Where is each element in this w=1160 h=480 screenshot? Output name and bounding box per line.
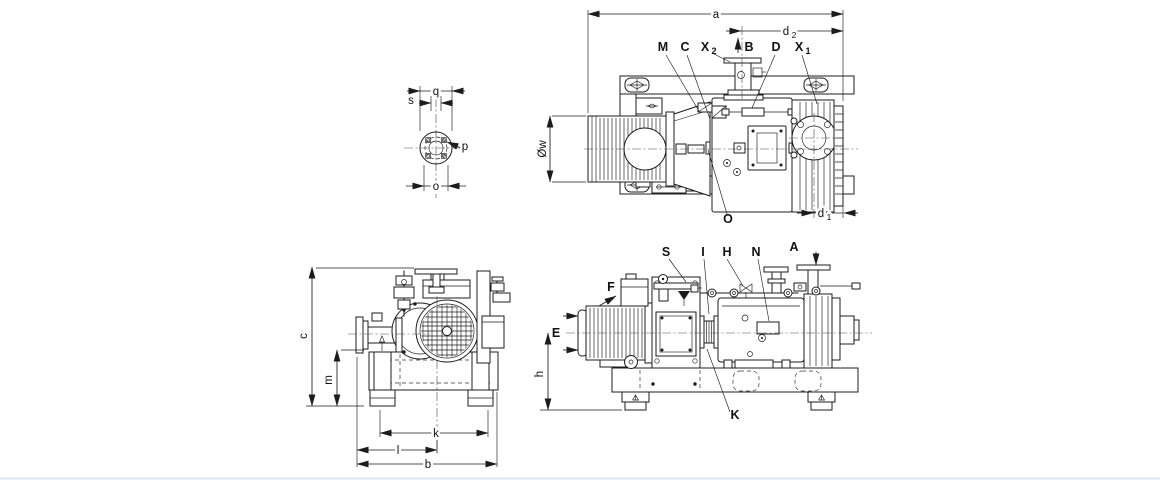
- cooling-ribs-side-view: [804, 287, 832, 368]
- dim-h: h: [534, 333, 548, 410]
- dim-label-o: o: [433, 181, 439, 193]
- front-view: c m k l b: [298, 267, 510, 471]
- label-K: K: [730, 408, 739, 422]
- base-block-side-view: [612, 368, 858, 392]
- label-O: O: [723, 212, 733, 226]
- dim-label-d1-sub: 1: [827, 212, 832, 222]
- label-C: C: [680, 40, 689, 54]
- frame-plate-front: [477, 271, 510, 363]
- dim-label-w: Øw: [537, 140, 549, 158]
- side-view: h S I H N A F E K: [534, 240, 872, 422]
- dim-label-p: p: [462, 141, 468, 153]
- label-X1: X: [795, 40, 804, 54]
- pipe-fitting: [372, 313, 382, 321]
- dim-label-b: b: [425, 459, 431, 471]
- dim-label-s: s: [408, 95, 414, 107]
- machine-foot: [808, 392, 835, 410]
- label-H: H: [722, 245, 731, 259]
- dim-label-d2: d: [783, 26, 789, 38]
- dim-label-a: a: [713, 9, 720, 21]
- coupling-side-view: [700, 316, 718, 348]
- dim-m: m: [323, 350, 364, 406]
- label-M: M: [658, 40, 668, 54]
- shaft-end-side-view: [832, 298, 859, 360]
- pump-dimensional-drawing-page: q s o p: [0, 0, 1160, 480]
- flange-detail-view: q s o p: [404, 86, 468, 198]
- dim-q: q: [407, 86, 465, 131]
- nameplate: [757, 322, 779, 334]
- label-S: S: [662, 245, 670, 259]
- dim-label-q: q: [433, 86, 439, 98]
- bottom-edge-line: [0, 478, 1160, 480]
- dim-label-c: c: [298, 333, 310, 339]
- label-X2: X: [701, 40, 710, 54]
- label-A: A: [789, 240, 798, 254]
- label-F: F: [607, 280, 615, 294]
- dim-label-d1: d: [818, 208, 824, 220]
- dimensional-drawing: q s o p: [0, 0, 1160, 480]
- label-B: B: [744, 40, 753, 54]
- label-X2-sub: 2: [711, 46, 716, 56]
- dim-label-l: l: [397, 445, 400, 457]
- motor-side-view: [578, 274, 653, 369]
- dim-s: s: [408, 95, 453, 111]
- end-cover-top-view: [834, 106, 843, 206]
- label-D: D: [771, 40, 780, 54]
- label-I: I: [701, 245, 704, 259]
- machine-foot: [804, 78, 828, 92]
- dim-label-h: h: [534, 371, 546, 377]
- dim-d2: d 2: [726, 26, 843, 40]
- terminal-box: [621, 279, 648, 306]
- flow-arrow-F: [599, 296, 616, 306]
- dim-p: p: [447, 141, 468, 153]
- pump-top-piping-side-view: [700, 267, 798, 298]
- label-N: N: [751, 245, 760, 259]
- dim-label-m: m: [323, 375, 335, 385]
- machine-foot: [625, 78, 649, 92]
- machine-foot: [622, 392, 649, 410]
- label-X1-sub: 1: [805, 46, 810, 56]
- label-E: E: [552, 326, 560, 340]
- discharge-pipe-side-view: [794, 265, 860, 298]
- dim-label-k: k: [433, 428, 439, 440]
- fan-guard-front: [416, 300, 478, 362]
- dim-w: Øw: [537, 116, 586, 182]
- dim-label-d2-sub: 2: [792, 30, 797, 40]
- dim-k: k: [380, 410, 488, 440]
- reservoir-tank-front: [423, 274, 470, 298]
- top-view: a d 2 d 1 Øw M C X 2 B: [537, 9, 858, 226]
- pump-casing-top-view: [712, 98, 800, 212]
